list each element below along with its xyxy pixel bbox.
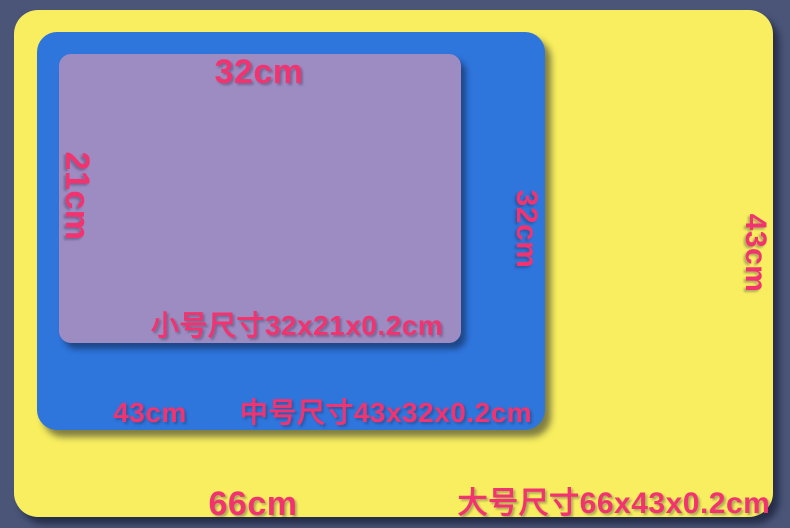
size-comparison-diagram: 32cm 21cm 小号尺寸32x21x0.2cm 32cm 43cm 中号尺寸…: [0, 0, 790, 528]
small-pad-size-caption: 小号尺寸32x21x0.2cm: [151, 312, 443, 340]
medium-pad-height-label: 32cm: [511, 190, 541, 269]
small-pad-width-label: 32cm: [215, 55, 304, 89]
large-pad-width-label: 66cm: [209, 487, 298, 521]
medium-pad-size-caption: 中号尺寸43x32x0.2cm: [240, 399, 532, 427]
large-pad-height-label: 43cm: [740, 214, 770, 293]
medium-pad-width-label: 43cm: [113, 399, 187, 427]
small-pad-height-label: 21cm: [60, 152, 94, 241]
small-pad-rectangle: [59, 54, 461, 343]
large-pad-size-caption: 大号尺寸66x43x0.2cm: [458, 489, 771, 519]
